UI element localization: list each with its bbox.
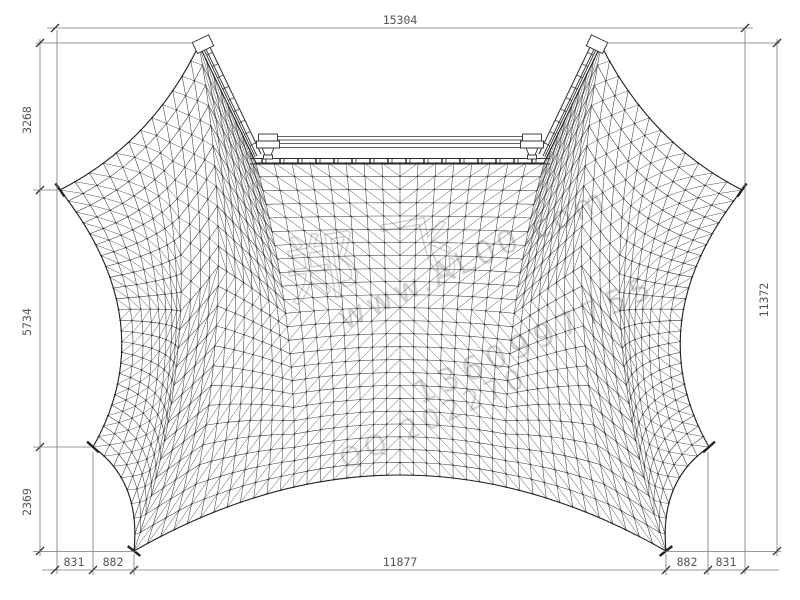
dim-left-top: 3268: [20, 106, 34, 134]
dim-bottom-3: 11877: [383, 555, 418, 569]
dim-total-height: 11372: [757, 283, 771, 318]
dim-total-width: 15304: [383, 13, 418, 27]
dim-bottom-1: 831: [64, 555, 85, 569]
dim-bottom-2: 882: [103, 555, 124, 569]
drawing-canvas: 郑 飞 www.AL00.com 1360997755 QQ 202270 15…: [0, 0, 800, 600]
dim-bottom-4: 882: [677, 555, 698, 569]
dim-left-mid: 5734: [20, 308, 34, 336]
dim-left-bottom: 2369: [20, 488, 34, 516]
ridge-beams-and-track: [192, 35, 607, 164]
cad-viewport: 郑 飞 www.AL00.com 1360997755 QQ 202270 15…: [0, 0, 800, 600]
dim-bottom-5: 831: [716, 555, 737, 569]
